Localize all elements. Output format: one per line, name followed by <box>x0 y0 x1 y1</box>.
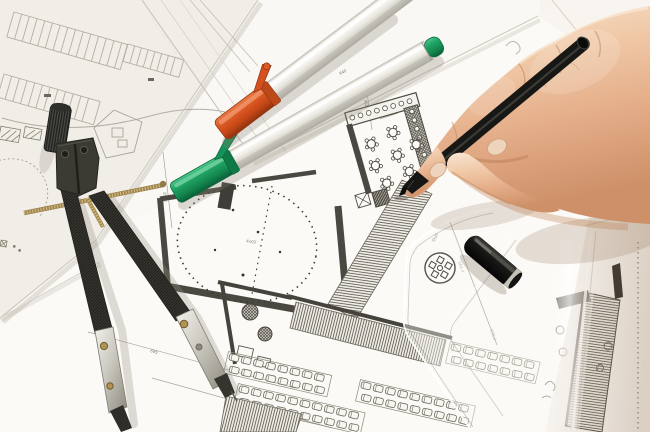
pen-tip-shadow <box>394 196 408 201</box>
shrub-symbol <box>242 304 258 320</box>
scene-canvas: 150 ··· ···· ·· ····· ···· ······ ····· … <box>0 0 650 432</box>
hinge-screw <box>80 146 87 153</box>
shrub-symbol <box>258 327 272 341</box>
photo-architect-desk: 150 ··· ···· ·· ····· ···· ······ ····· … <box>0 0 650 432</box>
hinge-screw <box>61 150 68 157</box>
